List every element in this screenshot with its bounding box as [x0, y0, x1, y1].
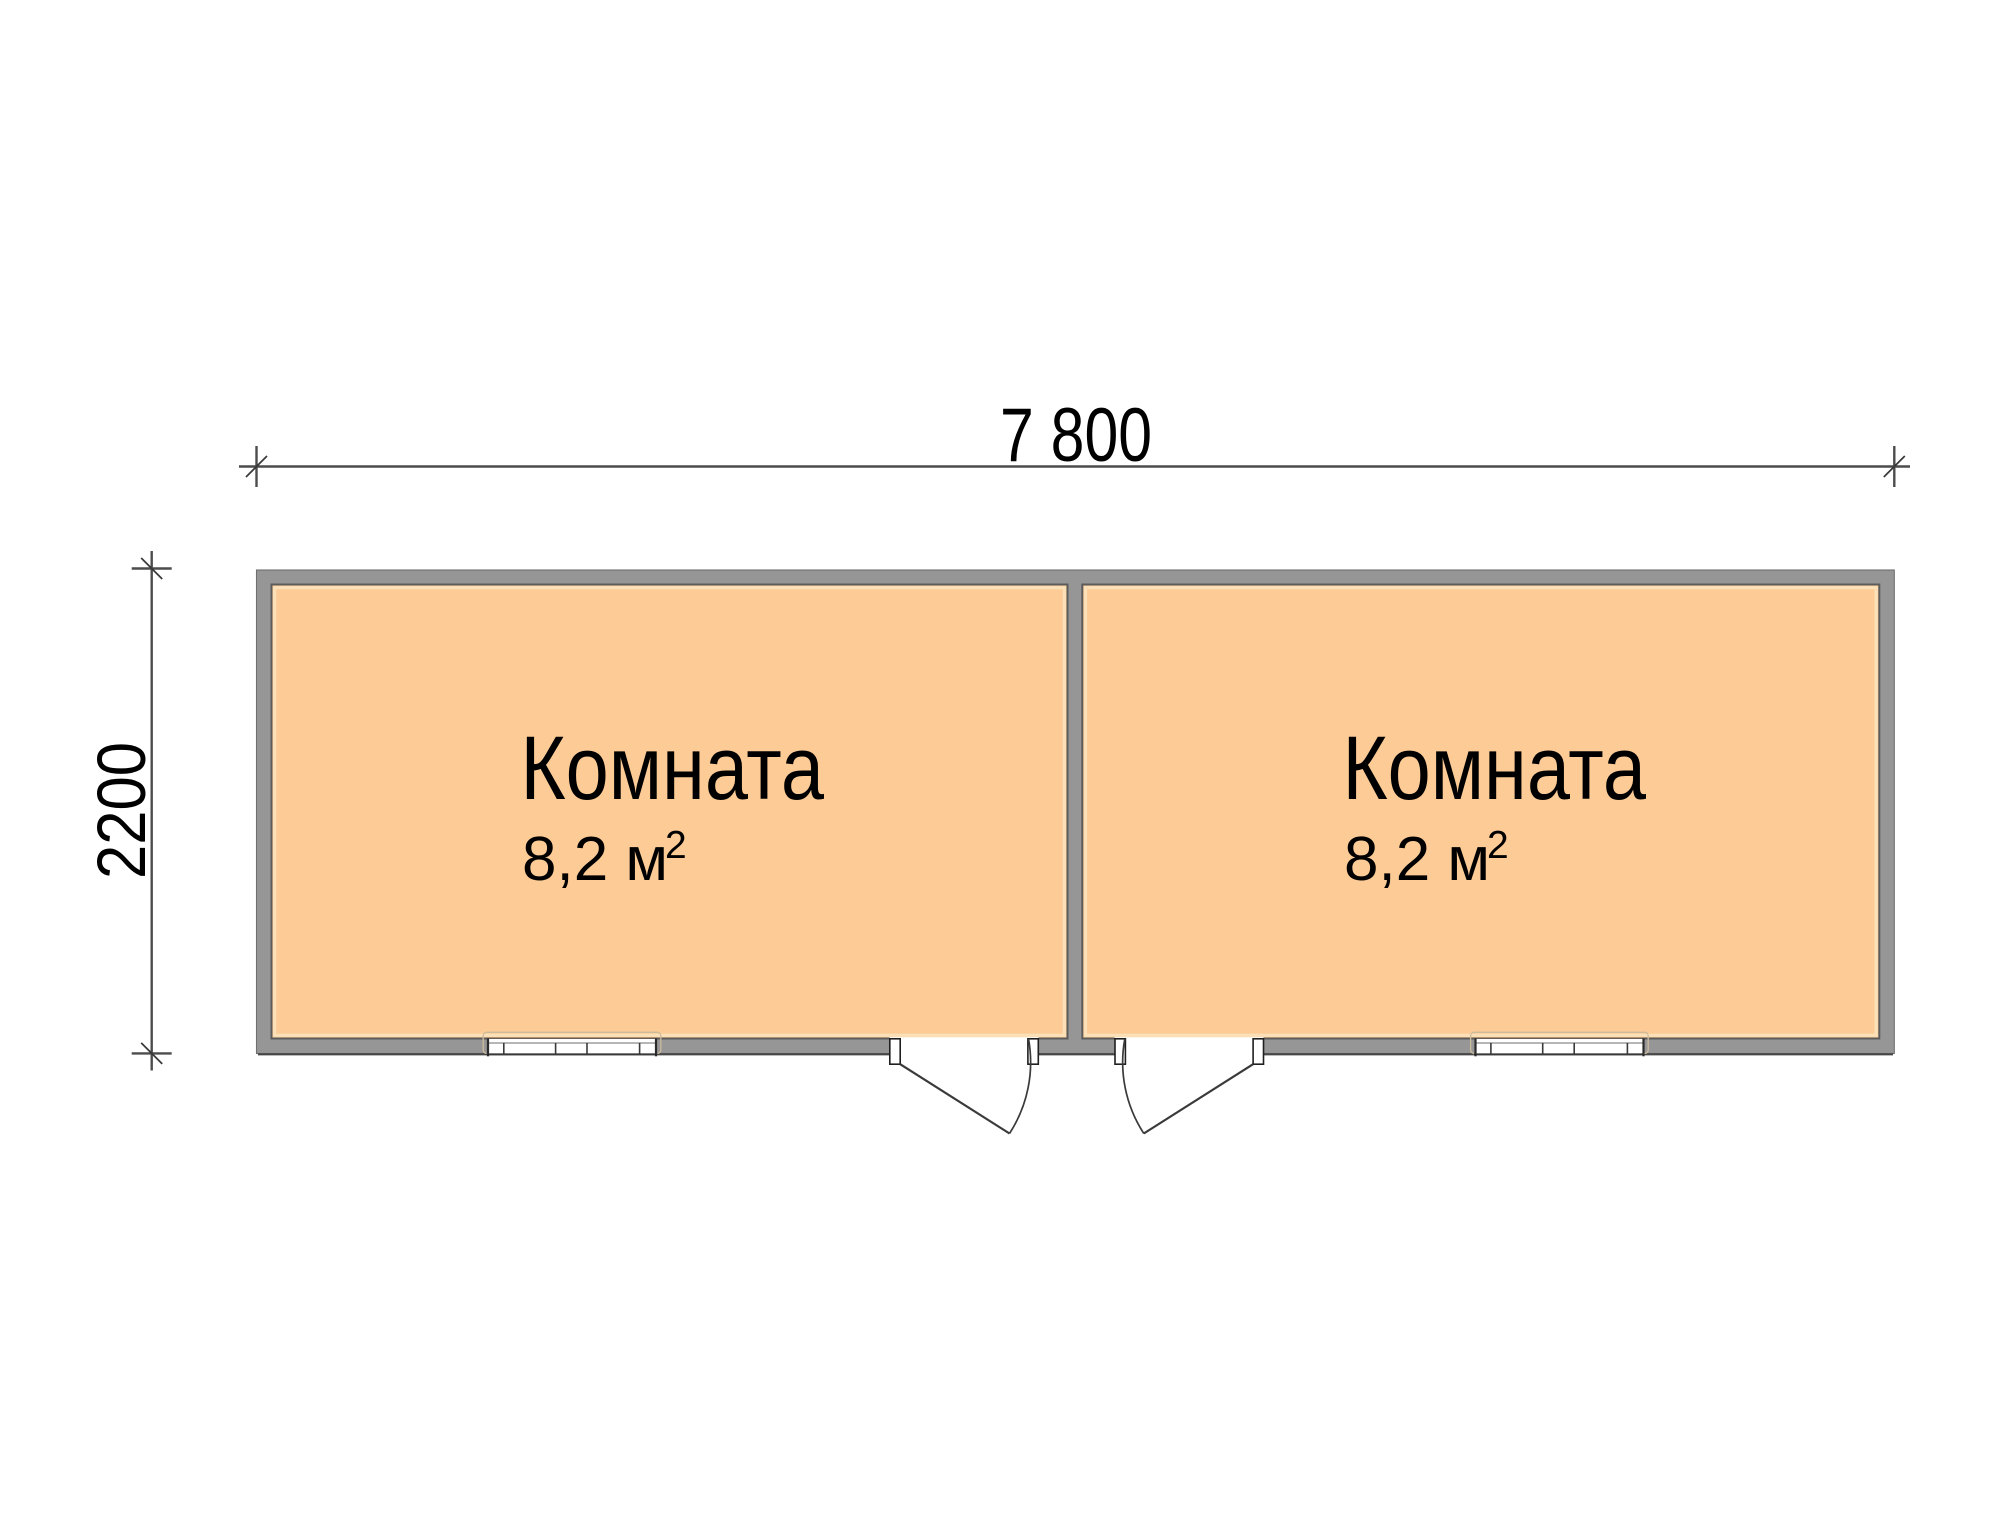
svg-text:Комната: Комната	[521, 719, 825, 819]
svg-text:8,2 м2: 8,2 м2	[1344, 824, 1509, 894]
svg-text:Комната: Комната	[1343, 719, 1647, 819]
svg-text:2200: 2200	[83, 742, 160, 879]
svg-text:7 800: 7 800	[1000, 393, 1152, 478]
svg-text:8,2 м2: 8,2 м2	[522, 824, 687, 894]
